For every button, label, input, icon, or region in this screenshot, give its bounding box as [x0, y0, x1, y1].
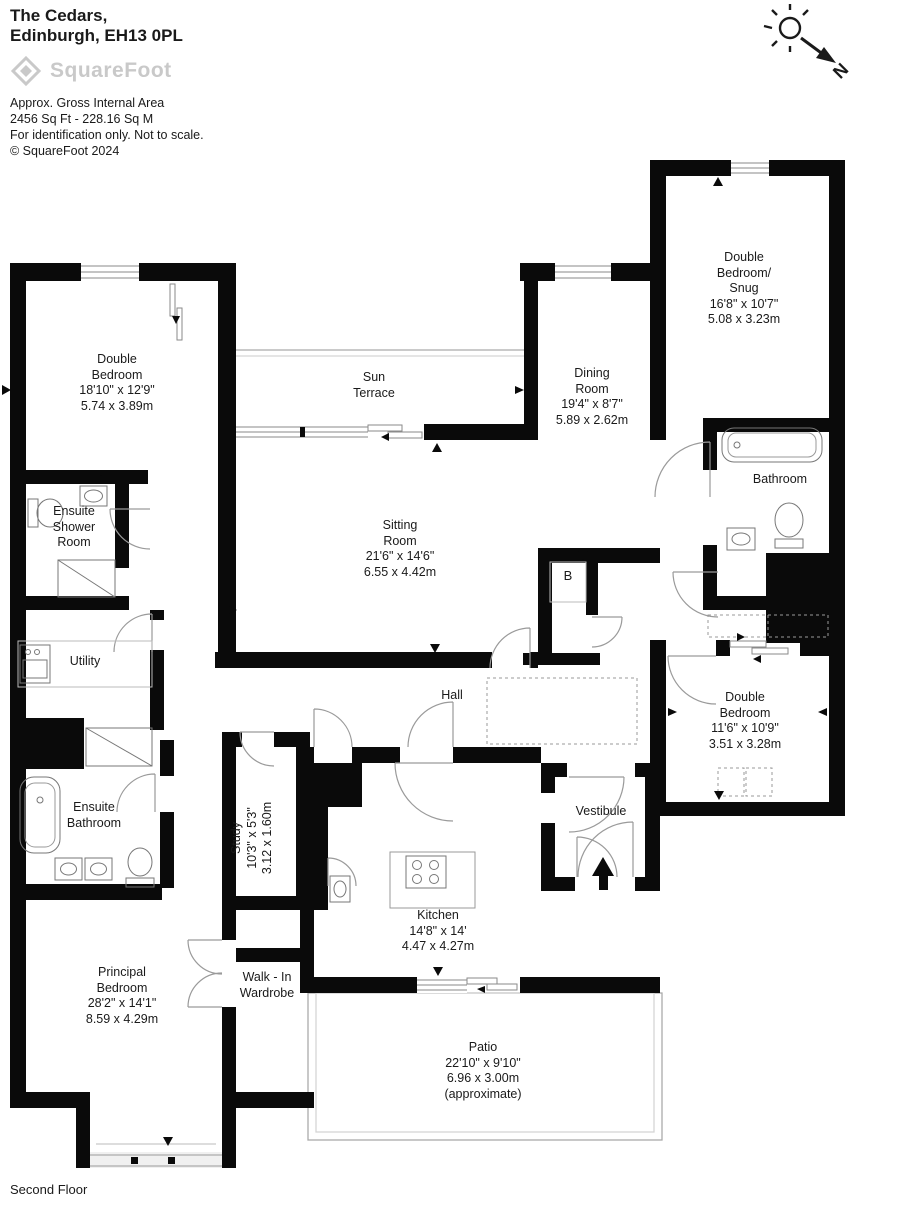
room-dim-note: (approximate) [444, 1087, 521, 1103]
room-name-line: Sun [353, 370, 395, 386]
room-name-line: Bathroom [753, 472, 807, 488]
door-arc [408, 702, 453, 747]
room-dim-metric: 6.96 x 3.00m [444, 1071, 521, 1087]
room-name-line: Hall [441, 688, 463, 704]
room-label-double-bedroom-e: Double Bedroom 11'6" x 10'9" 3.51 x 3.28… [709, 690, 781, 752]
room-name-line: Bedroom [79, 368, 155, 384]
room-name-line: Wardrobe [240, 986, 294, 1002]
room-dim-imperial: 16'8" x 10'7" [708, 297, 780, 313]
shower-tray-icon [86, 728, 152, 766]
hall-dashed-area [487, 678, 637, 744]
room-label-double-bedroom-snug: Double Bedroom/ Snug 16'8" x 10'7" 5.08 … [708, 250, 780, 328]
room-name-line: Ensuite [67, 800, 121, 816]
room-label-kitchen: Kitchen 14'8" x 14' 4.47 x 4.27m [402, 908, 474, 955]
room-name-line: Double [79, 352, 155, 368]
room-dim-imperial: 11'6" x 10'9" [709, 721, 781, 737]
kitchen-island-hob-icon [390, 852, 475, 908]
room-dim-imperial: 28'2" x 14'1" [86, 996, 158, 1012]
room-label-study: Study 10'3" x 5'3" 3.12 x 1.60m [229, 802, 276, 874]
room-name-line: Snug [708, 281, 780, 297]
room-label-ensuite-bathroom: Ensuite Bathroom [67, 800, 121, 831]
room-name-line: Principal [86, 965, 158, 981]
room-name-line: Double [708, 250, 780, 266]
door-arc [655, 442, 710, 497]
room-dim-metric: 3.12 x 1.60m [260, 802, 276, 874]
room-name-line: Room [556, 382, 628, 398]
sliding-door [467, 978, 517, 990]
room-name-line: Study [229, 802, 245, 874]
room-name-line: Bathroom [67, 816, 121, 832]
room-label-hall: Hall [441, 688, 463, 704]
entrance-arrow-icon [592, 857, 614, 890]
room-label-patio: Patio 22'10" x 9'10" 6.96 x 3.00m (appro… [444, 1040, 521, 1102]
toilet-icon [775, 503, 803, 548]
floor-label: Second Floor [10, 1182, 87, 1197]
room-label-utility: Utility [70, 654, 101, 670]
sink-icon [85, 858, 112, 880]
door-arc [188, 973, 222, 1007]
door-arc [395, 763, 453, 821]
bathtub-icon [722, 428, 822, 462]
sink-icon [330, 876, 350, 902]
room-name-line: Bedroom [86, 981, 158, 997]
room-name-line: Ensuite [53, 504, 95, 520]
room-name-line: Bedroom [709, 706, 781, 722]
sink-icon [727, 528, 755, 550]
sink-icon [55, 858, 82, 880]
sink-icon [80, 486, 107, 506]
window [90, 1144, 222, 1168]
room-dim-metric: 3.51 x 3.28m [709, 737, 781, 753]
door-arc [114, 614, 152, 652]
room-label-walk-in-wardrobe: Walk - In Wardrobe [240, 970, 294, 1001]
window [236, 424, 368, 440]
door-arc [314, 709, 352, 747]
room-name-line: Walk - In [240, 970, 294, 986]
room-name-line: Bedroom/ [708, 266, 780, 282]
room-label-sun-terrace: Sun Terrace [353, 370, 395, 401]
sliding-door [368, 425, 422, 438]
room-dim-metric: 5.74 x 3.89m [79, 399, 155, 415]
shower-tray-icon [58, 560, 115, 597]
room-label-bathroom: Bathroom [753, 472, 807, 488]
room-name-line: Room [364, 534, 436, 550]
boiler-label: B [564, 568, 573, 583]
room-name-line: Terrace [353, 386, 395, 402]
room-dim-imperial: 21'6" x 14'6" [364, 549, 436, 565]
window [728, 160, 772, 176]
room-name-line: Room [53, 535, 95, 551]
room-dim-imperial: 10'3" x 5'3" [244, 802, 260, 874]
floorplan-page: The Cedars, Edinburgh, EH13 0PL SquareFo… [0, 0, 900, 1205]
room-dim-imperial: 22'10" x 9'10" [444, 1056, 521, 1072]
furniture-dashed [746, 768, 772, 796]
room-name-line: Sitting [364, 518, 436, 534]
room-label-sitting-room: Sitting Room 21'6" x 14'6" 6.55 x 4.42m [364, 518, 436, 580]
room-dim-metric: 5.08 x 3.23m [708, 312, 780, 328]
room-name-line: Kitchen [402, 908, 474, 924]
door-arc [240, 732, 274, 766]
room-name-line: Utility [70, 654, 101, 670]
room-label-principal-bedroom: Principal Bedroom 28'2" x 14'1" 8.59 x 4… [86, 965, 158, 1027]
room-name-line: Double [709, 690, 781, 706]
door-arc [592, 617, 622, 647]
room-dim-metric: 5.89 x 2.62m [556, 413, 628, 429]
room-dim-metric: 4.47 x 4.27m [402, 939, 474, 955]
room-dim-metric: 6.55 x 4.42m [364, 565, 436, 581]
room-name-line: Vestibule [576, 804, 627, 820]
room-dim-imperial: 18'10" x 12'9" [79, 383, 155, 399]
door-arc [188, 940, 222, 974]
room-label-vestibule: Vestibule [576, 804, 627, 820]
room-dim-imperial: 19'4" x 8'7" [556, 397, 628, 413]
room-name-line: Dining [556, 366, 628, 382]
window [552, 263, 614, 281]
room-name-line: Patio [444, 1040, 521, 1056]
toilet-icon [126, 848, 154, 887]
window [417, 977, 467, 993]
room-label-double-bedroom-nw: Double Bedroom 18'10" x 12'9" 5.74 x 3.8… [79, 352, 155, 414]
room-dim-imperial: 14'8" x 14' [402, 924, 474, 940]
room-dim-metric: 8.59 x 4.29m [86, 1012, 158, 1028]
room-label-dining-room: Dining Room 19'4" x 8'7" 5.89 x 2.62m [556, 366, 628, 428]
door-arc [117, 774, 155, 812]
room-name-line: Shower [53, 520, 95, 536]
room-label-ensuite-shower-room: Ensuite Shower Room [53, 504, 95, 551]
window [78, 263, 142, 281]
sliding-door [170, 284, 182, 340]
